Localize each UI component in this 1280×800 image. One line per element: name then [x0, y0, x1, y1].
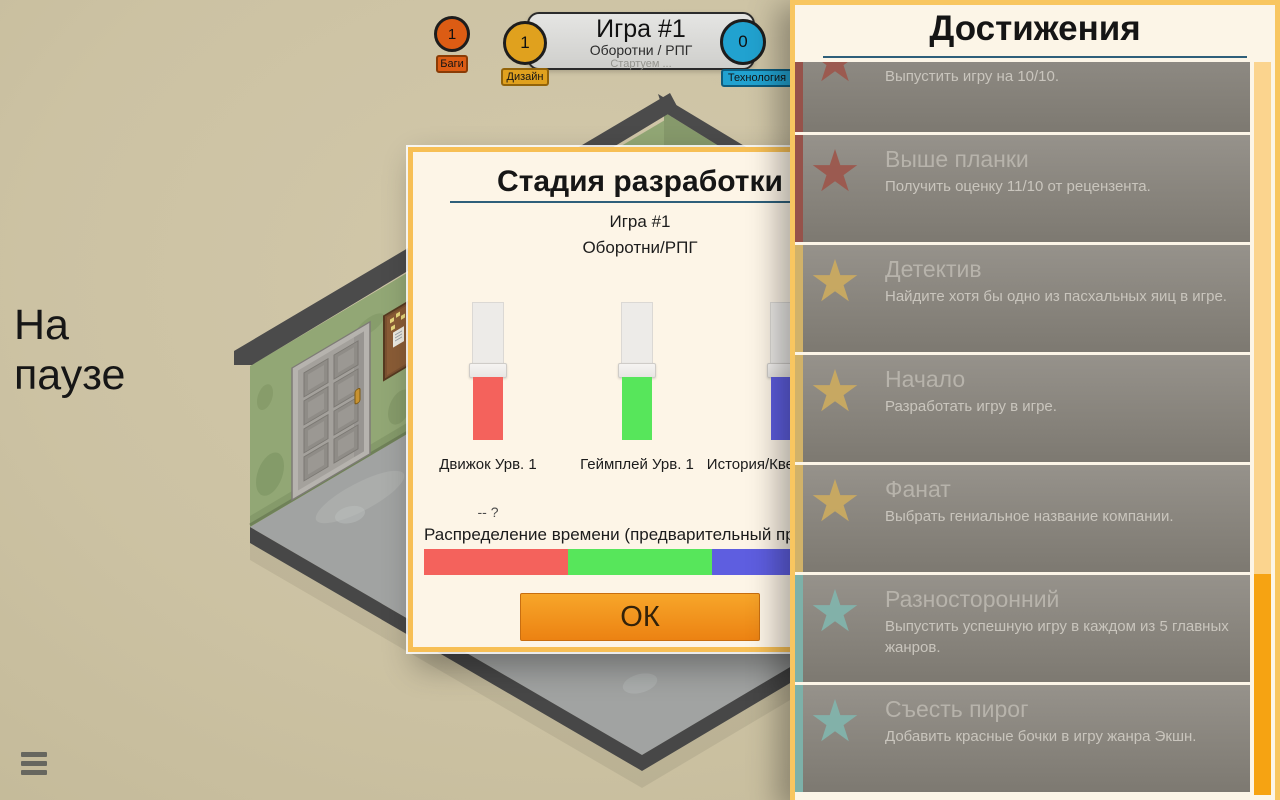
achievement-name: Выше планки	[885, 145, 1250, 173]
achievement-description: Найдите хотя бы одно из пасхальных яиц в…	[885, 286, 1235, 307]
technology-label: Технология	[721, 69, 793, 87]
title-underline	[450, 201, 830, 203]
tier-strip	[795, 355, 803, 462]
technology-counter: 0	[720, 19, 766, 65]
engine-slider-handle[interactable]	[469, 363, 507, 378]
achievements-panel: ★ Выпустить игру на 10/10. ★ Выше планки…	[795, 5, 1275, 800]
tier-strip	[795, 465, 803, 572]
star-icon: ★	[809, 251, 861, 313]
menu-icon[interactable]	[21, 752, 47, 779]
tier-strip	[795, 575, 803, 682]
tier-strip	[795, 685, 803, 792]
engine-slider-label: Движок Урв. 1	[408, 455, 568, 474]
design-label: Дизайн	[501, 68, 549, 86]
door-handle	[355, 388, 360, 405]
allocation-segment-gameplay	[568, 549, 712, 575]
star-icon: ★	[809, 62, 861, 93]
achievement-description: Разработать игру в игре.	[885, 396, 1235, 417]
tier-strip	[795, 245, 803, 352]
tier-strip	[795, 62, 803, 132]
achievement-item: ★ Съесть пирог Добавить красные бочки в …	[795, 685, 1250, 792]
achievement-description: Выпустить успешную игру в каждом из 5 гл…	[885, 616, 1235, 658]
bugs-label: Баги	[436, 55, 468, 73]
gameplay-slider: Геймплей Урв. 1	[557, 302, 717, 462]
star-icon: ★	[809, 361, 861, 423]
gameplay-slider-label: Геймплей Урв. 1	[557, 455, 717, 474]
achievement-name: Детектив	[885, 255, 1250, 283]
star-icon: ★	[809, 581, 861, 643]
achievements-header: Достижения	[795, 5, 1275, 62]
achievement-item: ★ Фанат Выбрать гениальное название комп…	[795, 465, 1250, 572]
achievement-name: Съесть пирог	[885, 695, 1250, 723]
achievement-item: ★ Выше планки Получить оценку 11/10 от р…	[795, 135, 1250, 242]
achievements-scrollbar-track[interactable]	[1254, 62, 1271, 795]
achievement-description: Выбрать гениальное название компании.	[885, 506, 1235, 527]
ok-button[interactable]: ОК	[520, 593, 760, 641]
achievement-item: ★ Начало Разработать игру в игре.	[795, 355, 1250, 462]
pause-status: На паузе	[14, 300, 174, 400]
game-status: Стартуем ...	[529, 58, 753, 71]
engine-slider-bar	[473, 377, 503, 440]
tier-strip	[795, 135, 803, 242]
achievements-scrollbar-thumb[interactable]	[1254, 574, 1271, 795]
achievement-name: Разносторонний	[885, 585, 1250, 613]
star-icon: ★	[809, 691, 861, 753]
achievement-item: ★ Детектив Найдите хотя бы одно из пасха…	[795, 245, 1250, 352]
achievement-description: Выпустить игру на 10/10.	[885, 66, 1235, 87]
achievements-list: ★ Выпустить игру на 10/10. ★ Выше планки…	[795, 62, 1250, 800]
achievement-name	[885, 62, 1250, 63]
gameplay-slider-track[interactable]	[621, 302, 653, 365]
bugs-counter: 1	[434, 16, 470, 52]
achievement-description: Получить оценку 11/10 от рецензента.	[885, 176, 1235, 197]
achievement-item: ★ Выпустить игру на 10/10.	[795, 62, 1250, 132]
star-icon: ★	[809, 471, 861, 533]
engine-slider: Движок Урв. 1	[408, 302, 568, 462]
achievement-item: ★ Разносторонний Выпустить успешную игру…	[795, 575, 1250, 682]
time-allocation-bar	[424, 549, 856, 575]
achievements-title: Достижения	[795, 9, 1275, 49]
achievement-name: Начало	[885, 365, 1250, 393]
achievement-name: Фанат	[885, 475, 1250, 503]
design-counter: 1	[503, 21, 547, 65]
achievement-description: Добавить красные бочки в игру жанра Экшн…	[885, 726, 1235, 747]
allocation-label: Распределение времени (предварительный п…	[424, 525, 856, 545]
achievements-underline	[823, 56, 1247, 58]
slider-hint: -- ?	[408, 504, 568, 520]
gameplay-slider-bar	[622, 377, 652, 440]
allocation-segment-engine	[424, 549, 568, 575]
engine-slider-track[interactable]	[472, 302, 504, 365]
gameplay-slider-handle[interactable]	[618, 363, 656, 378]
star-icon: ★	[809, 141, 861, 203]
game-screen: На паузе Игра #1 Оборотни / РПГ Стартуем…	[0, 0, 1280, 800]
